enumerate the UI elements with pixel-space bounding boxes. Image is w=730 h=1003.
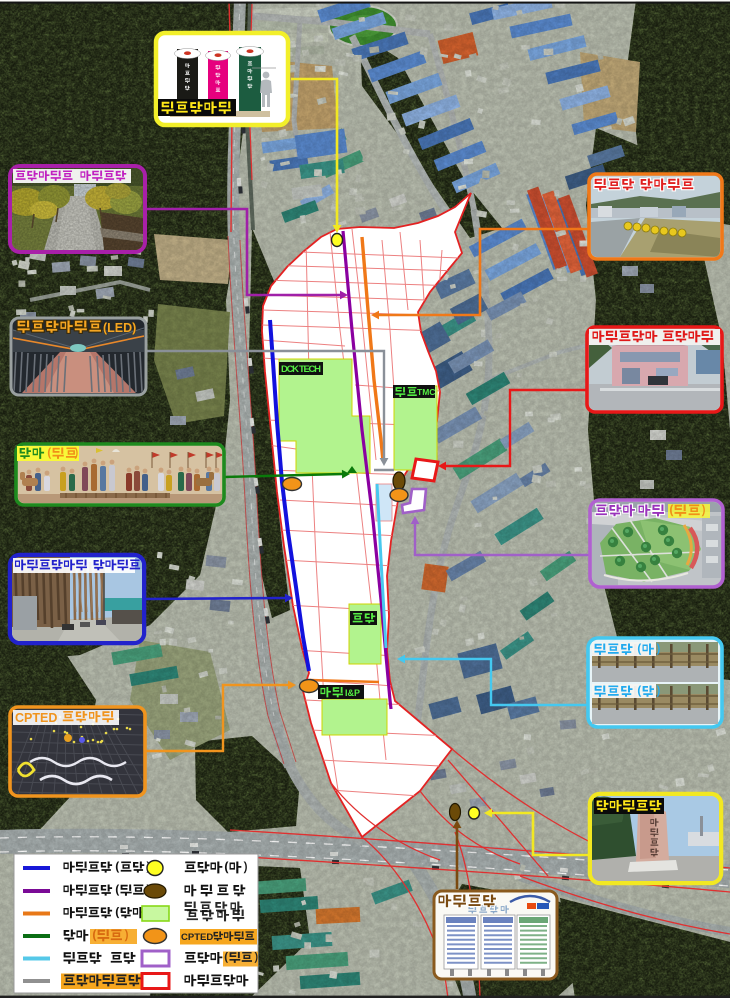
svg-text:DCK TECH: DCK TECH	[281, 364, 321, 375]
svg-text:TMC: TMC	[417, 387, 435, 397]
svg-text:CPTED: CPTED	[15, 711, 57, 725]
svg-text:I&P: I&P	[345, 688, 360, 698]
svg-text:CPTED: CPTED	[181, 932, 213, 943]
svg-text:(LED): (LED)	[103, 321, 136, 335]
